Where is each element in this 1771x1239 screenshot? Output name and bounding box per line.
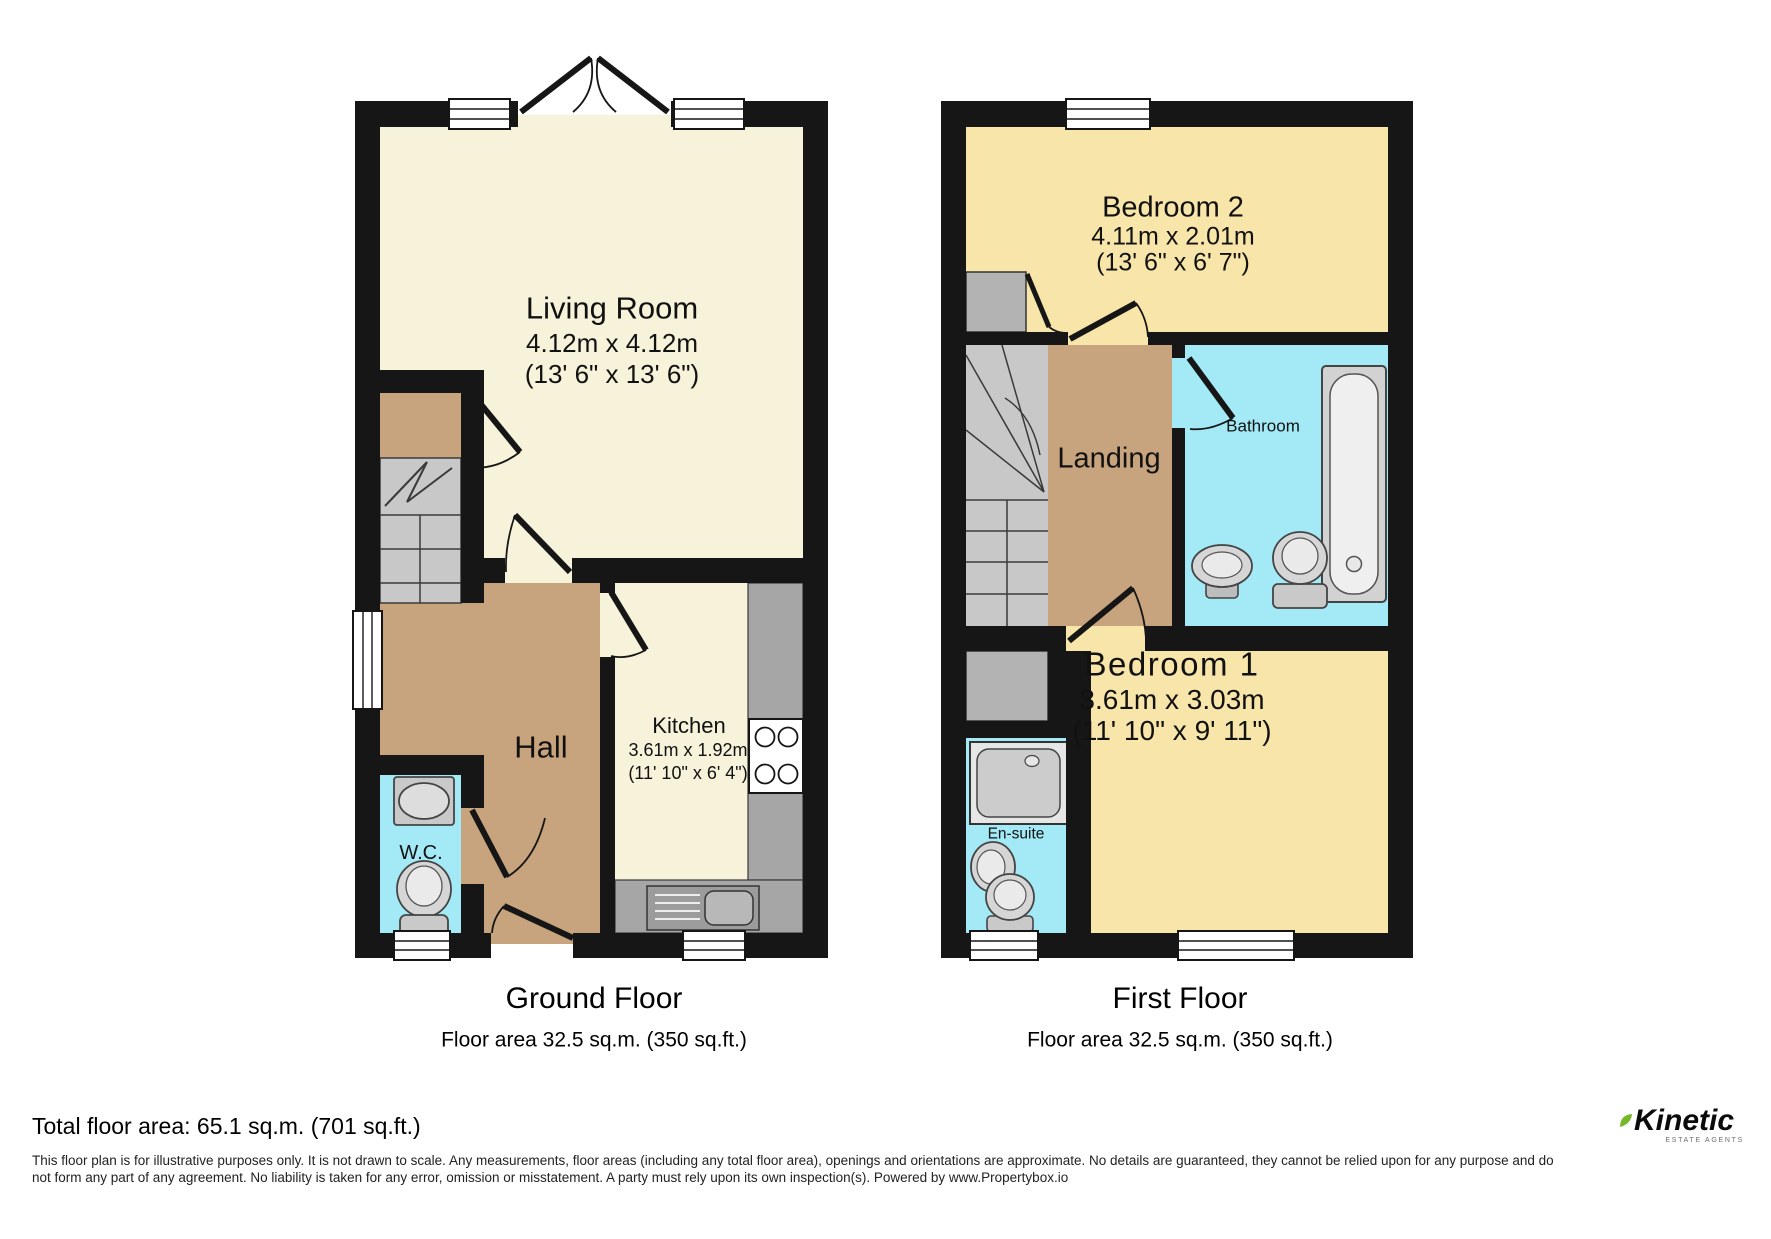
landing-closet bbox=[966, 651, 1048, 721]
ground-floor-title: Ground Floor bbox=[506, 984, 683, 1014]
kinetic-logo: Kinetic ESTATE AGENTS bbox=[1620, 1106, 1750, 1144]
logo-tagline: ESTATE AGENTS bbox=[1620, 1137, 1750, 1144]
bedroom2-size-metric: 4.11m x 2.01m bbox=[1091, 225, 1255, 250]
window bbox=[1178, 931, 1294, 960]
kitchen-sink-icon bbox=[647, 886, 759, 930]
bedroom1-label: Bedroom 1 bbox=[1085, 648, 1260, 681]
understairs-closet-floor bbox=[380, 393, 461, 458]
window bbox=[449, 99, 510, 129]
ground-floor-plan bbox=[353, 58, 828, 960]
wc-basin-icon bbox=[394, 777, 454, 825]
bedroom2-label: Bedroom 2 bbox=[1102, 194, 1244, 223]
living-room-size-metric: 4.12m x 4.12m bbox=[526, 330, 698, 356]
bedroom1-size-metric: 3.61m x 3.03m bbox=[1079, 686, 1264, 714]
kitchen-size-imperial: (11' 10" x 6' 4") bbox=[628, 764, 747, 782]
logo-leaf-icon bbox=[1618, 1104, 1634, 1134]
bathroom-label: Bathroom bbox=[1226, 418, 1300, 435]
landing-label: Landing bbox=[1057, 445, 1160, 474]
wc-label: W.C. bbox=[399, 843, 442, 863]
window bbox=[353, 611, 382, 709]
shower-icon bbox=[970, 742, 1067, 824]
ensuite-label: En-suite bbox=[988, 826, 1045, 842]
hall-label: Hall bbox=[514, 732, 567, 763]
total-floor-area: Total floor area: 65.1 sq.m. (701 sq.ft.… bbox=[32, 1113, 421, 1140]
landing-floor bbox=[1048, 345, 1172, 626]
ground-floor-area: Floor area 32.5 sq.m. (350 sq.ft.) bbox=[441, 1030, 747, 1051]
kitchen-label: Kitchen bbox=[652, 715, 725, 737]
floorplan-canvas bbox=[0, 0, 1771, 1239]
first-floor-area: Floor area 32.5 sq.m. (350 sq.ft.) bbox=[1027, 1030, 1333, 1051]
window bbox=[1066, 99, 1150, 129]
logo-wordmark: Kinetic bbox=[1634, 1106, 1734, 1136]
wc-toilet-icon bbox=[397, 861, 451, 937]
disclaimer-text: This floor plan is for illustrative purp… bbox=[32, 1152, 1562, 1187]
bathroom-toilet-icon bbox=[1273, 532, 1327, 608]
bedroom2-size-imperial: (13' 6" x 6' 7") bbox=[1096, 251, 1250, 276]
kitchen-size-metric: 3.61m x 1.92m bbox=[628, 741, 747, 759]
window bbox=[970, 931, 1038, 960]
living-room-size-imperial: (13' 6" x 13' 6") bbox=[525, 361, 699, 387]
stove-icon bbox=[749, 719, 803, 793]
window bbox=[674, 99, 744, 129]
patio-door bbox=[521, 58, 668, 112]
bedroom1-size-imperial: (11' 10" x 9' 11") bbox=[1072, 717, 1271, 745]
window bbox=[683, 931, 745, 960]
first-floor-title: First Floor bbox=[1113, 984, 1248, 1014]
window bbox=[394, 931, 450, 960]
ensuite-toilet-icon bbox=[986, 874, 1034, 932]
bathtub-icon bbox=[1322, 366, 1386, 602]
living-room-label: Living Room bbox=[526, 293, 698, 324]
